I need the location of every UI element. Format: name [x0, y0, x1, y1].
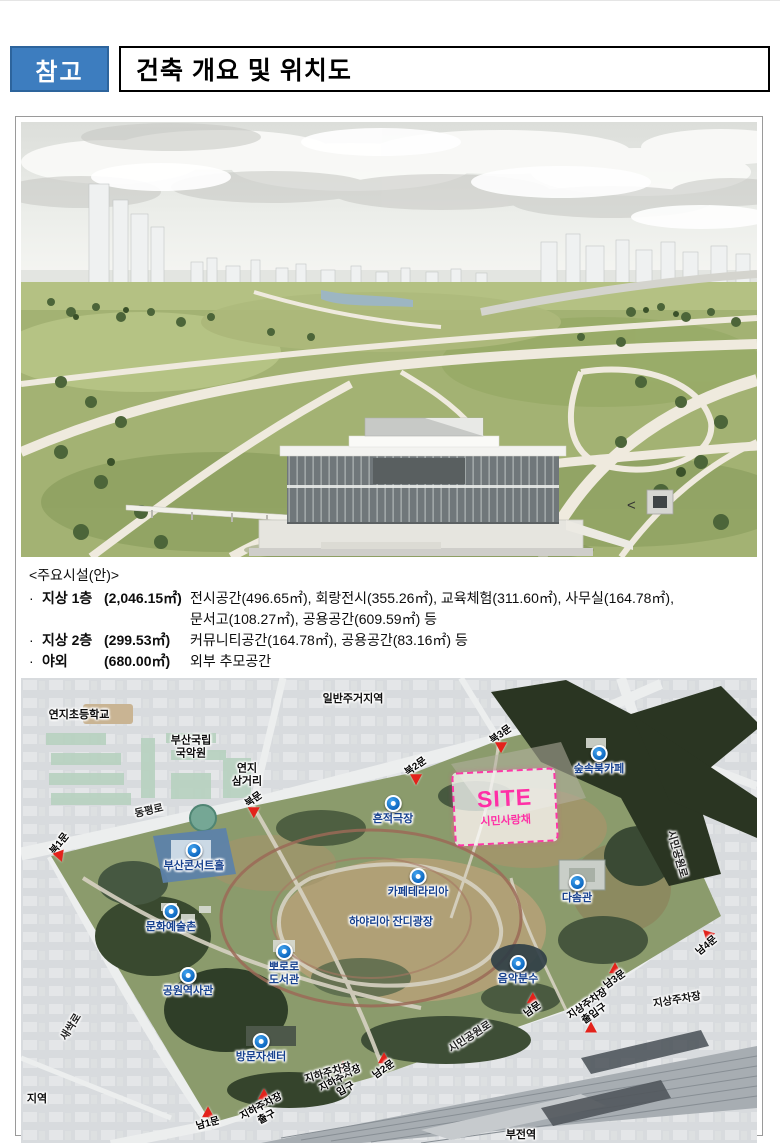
facility-description: 외부 추모공간	[190, 651, 749, 672]
facilities-summary: <주요시설(안)> · 지상 1층 (2,046.15㎡) 전시공간(496.6…	[21, 557, 757, 678]
facility-area: (680.00㎡)	[104, 651, 190, 672]
facility-area: (2,046.15㎡)	[104, 588, 190, 609]
facility-row: · 야외 (680.00㎡) 외부 추모공간	[29, 651, 749, 672]
aerial-rendering: <	[21, 122, 757, 557]
satellite-map-illustration	[21, 678, 757, 1143]
facility-area: (299.53㎡)	[104, 630, 190, 651]
facility-bullet: ·	[29, 588, 42, 609]
facility-row: · 지상 1층 (2,046.15㎡) 전시공간(496.65㎡), 회랑전시(…	[29, 588, 749, 630]
facility-bullet: ·	[29, 651, 42, 672]
title-box: 건축 개요 및 위치도	[119, 46, 770, 92]
page-title: 건축 개요 및 위치도	[136, 51, 352, 87]
facility-name: 지상 2층	[42, 630, 104, 651]
aerial-rendering-illustration: <	[21, 122, 757, 557]
facilities-heading: <주요시설(안)>	[29, 565, 749, 586]
facility-name: 지상 1층	[42, 588, 104, 609]
page-header: 참고 건축 개요 및 위치도	[10, 46, 770, 92]
reference-badge: 참고	[10, 46, 109, 92]
facility-row: · 지상 2층 (299.53㎡) 커뮤니티공간(164.78㎡), 공용공간(…	[29, 630, 749, 651]
facilities-rows: · 지상 1층 (2,046.15㎡) 전시공간(496.65㎡), 회랑전시(…	[29, 588, 749, 672]
site-badge: SITE 시민사랑채	[451, 767, 559, 846]
facility-description: 전시공간(496.65㎡), 회랑전시(355.26㎡), 교육체험(311.6…	[190, 588, 749, 630]
facility-bullet: ·	[29, 630, 42, 651]
render-arrow-glyph: <	[627, 497, 636, 514]
site-title: SITE	[476, 785, 532, 811]
facility-description: 커뮤니티공간(164.78㎡), 공용공간(83.16㎡) 등	[190, 630, 749, 651]
content-box: < <주요시설(안)> · 지상 1층 (2,046.15㎡) 전시공간(496…	[15, 116, 763, 1136]
facility-name: 야외	[42, 651, 104, 672]
location-map: 숲속북카페 흔적극장 부산콘서트홀 카페테라리아 다솜관 문화예술촌 하야리아 …	[21, 678, 757, 1143]
site-subtitle: 시민사랑채	[480, 810, 531, 829]
